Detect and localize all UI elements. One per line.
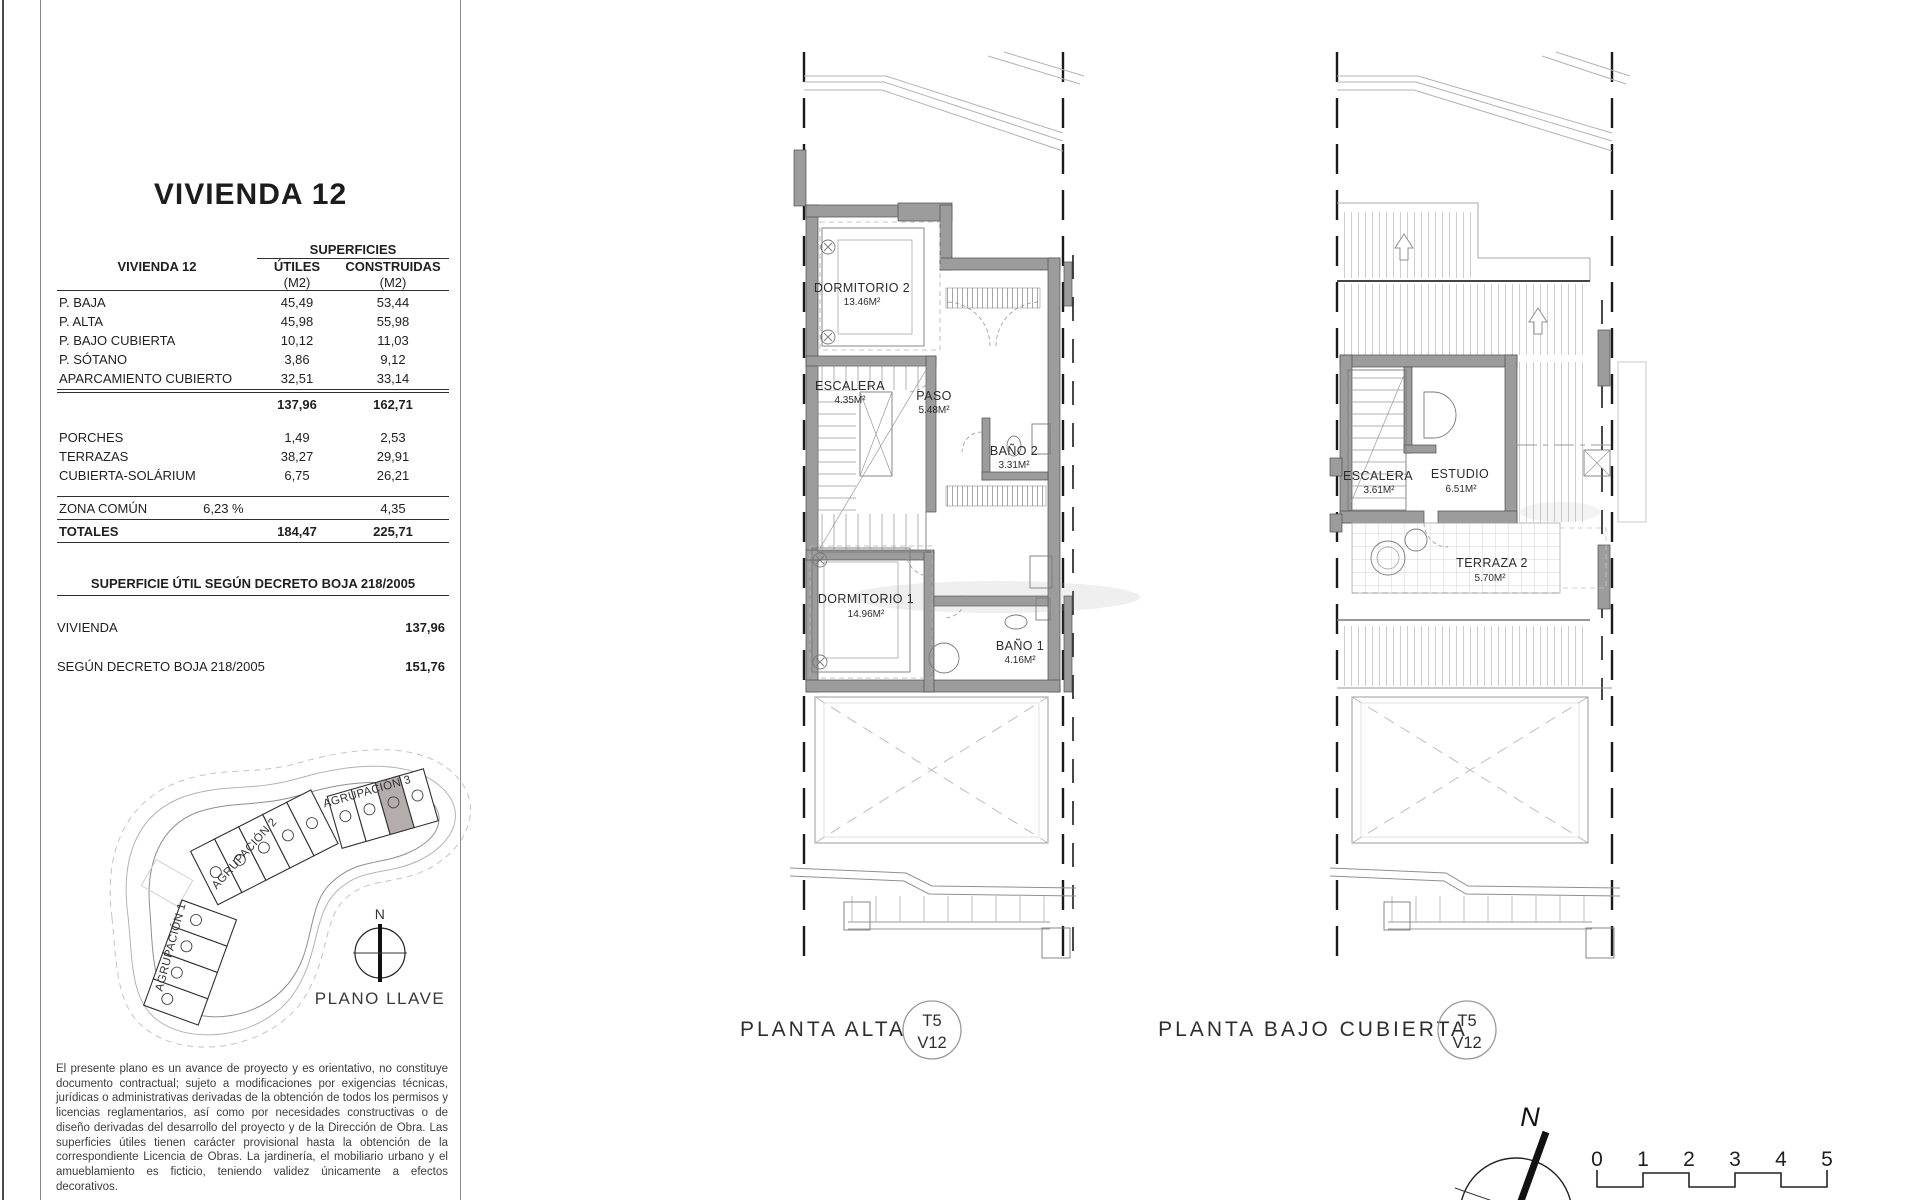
table-row: P. ALTA 45,98 55,98 [57, 312, 449, 331]
scale-bar-shape [1597, 1170, 1827, 1187]
room-label: ESCALERA [1343, 469, 1413, 483]
room-area: 5.70M² [1474, 573, 1506, 584]
post [1384, 902, 1410, 930]
table-row: P. BAJA 45,49 53,44 [57, 293, 449, 312]
table-row: APARCAMIENTO CUBIERTO 32,51 33,14 [57, 369, 449, 388]
sheet-compass: N [1455, 1102, 1582, 1200]
stairs-planta-alta [818, 366, 926, 552]
surfaces-table: SUPERFICIES VIVIENDA 12 ÚTILES CONSTRUID… [57, 242, 449, 545]
planta-alta-caption: PLANTA ALTA [740, 1018, 906, 1041]
watermark [1520, 502, 1600, 522]
room-area: 4.35M² [834, 395, 866, 406]
room-area: 4.16M² [1004, 655, 1036, 666]
room-label: PASO [916, 389, 951, 403]
table-row: P. BAJO CUBIERTA 10,12 11,03 [57, 331, 449, 350]
room-area: 3.31M² [998, 460, 1030, 471]
room-label: DORMITORIO 2 [814, 281, 910, 295]
road-structure [790, 868, 1076, 958]
table-row: P. SÓTANO 3,86 9,12 [57, 350, 449, 369]
subtotal-row: 137,96 162,71 [57, 395, 449, 414]
scale-tick-1: 1 [1637, 1148, 1649, 1171]
decree-row: SEGÚN DECRETO BOJA 218/2005 151,76 [57, 659, 449, 674]
decree-section: SUPERFICIE ÚTIL SEGÚN DECRETO BOJA 218/2… [57, 576, 449, 674]
badge-type: T5 [922, 1012, 941, 1030]
room-label: TERRAZA 2 [1456, 556, 1528, 570]
room-area: 13.46M² [844, 297, 881, 308]
table-group-header: SUPERFICIES [257, 242, 449, 259]
totales-row: TOTALES 184,47 225,71 [57, 522, 449, 541]
scale-tick-3: 3 [1729, 1148, 1741, 1171]
table-rule [57, 290, 449, 291]
column-unit: (M2) [337, 275, 449, 290]
post [1042, 928, 1070, 958]
page-title: VIVIENDA 12 [41, 178, 460, 212]
roof-hatch [1338, 284, 1588, 355]
room-label: BAÑO 1 [996, 639, 1044, 653]
room-area: 6.51M² [1445, 484, 1477, 495]
plan-sheet: { "panel": { "title": "VIVIENDA 12", "ta… [0, 0, 1920, 1200]
room-label: ESCALERA [815, 379, 885, 393]
decree-heading: SUPERFICIE ÚTIL SEGÚN DECRETO BOJA 218/2… [57, 576, 449, 596]
room-label: BAÑO 2 [990, 444, 1038, 458]
neighbor-structure [1618, 362, 1646, 522]
table-row: PORCHES 1,49 2,53 [57, 428, 449, 447]
wardrobe [946, 288, 1040, 308]
room-area: 3.61M² [1363, 485, 1395, 496]
scale-tick-5: 5 [1821, 1148, 1833, 1171]
table-row: CUBIERTA-SOLÁRIUM 6,75 26,21 [57, 466, 449, 485]
desk [1424, 392, 1456, 438]
scale-tick-4: 4 [1775, 1148, 1787, 1171]
decree-row: VIVIENDA 137,96 [57, 620, 449, 635]
void-below [815, 697, 1048, 843]
badge-unit: V12 [917, 1034, 946, 1052]
column-unit: (M2) [257, 275, 337, 290]
room-area: 5.48M² [918, 405, 950, 416]
planta-bajo-cubierta-drawing: ESCALERA 3.61M² ESTUDIO 6.51M² TERRAZA 2… [1158, 52, 1646, 1059]
room-label: ESTUDIO [1431, 467, 1489, 481]
toilet [1005, 615, 1027, 629]
room-label: DORMITORIO 1 [818, 592, 914, 606]
scale-tick-2: 2 [1683, 1148, 1695, 1171]
zona-comun-percent: 6,23 % [203, 501, 243, 516]
post [1586, 928, 1614, 958]
column-header-construidas: CONSTRUIDAS [337, 259, 449, 274]
road-structure [1330, 868, 1620, 958]
table-row: TERRAZAS 38,27 29,91 [57, 447, 449, 466]
north-letter: N [1520, 1102, 1540, 1132]
badge-type: T5 [1457, 1012, 1476, 1030]
post [844, 902, 870, 930]
compass-needle [1488, 1132, 1546, 1200]
planta-alta-drawing: DORMITORIO 2 13.46M² ESCALERA 4.35M² PAS… [740, 52, 1140, 1059]
table-rule [57, 542, 449, 543]
zona-comun-row: ZONA COMÚN6,23 % 4,35 [57, 499, 449, 518]
column-header-utiles: ÚTILES [257, 259, 337, 274]
void-below [1352, 697, 1588, 843]
legal-disclaimer: El presente plano es un avance de proyec… [56, 1062, 448, 1194]
table-rule [57, 496, 449, 497]
info-panel: VIVIENDA 12 SUPERFICIES VIVIENDA 12 ÚTIL… [40, 0, 461, 1200]
scale-tick-0: 0 [1591, 1148, 1603, 1171]
table-rule [57, 519, 449, 520]
wardrobe [946, 486, 1046, 506]
room-area: 14.96M² [848, 609, 885, 620]
planta-bajo-cubierta-caption: PLANTA BAJO CUBIERTA [1158, 1018, 1468, 1041]
scale-bar: 0 1 2 3 4 5 [1591, 1148, 1833, 1187]
badge-unit: V12 [1452, 1034, 1481, 1052]
table-rule [57, 389, 449, 393]
roof-hatch [1517, 362, 1588, 522]
table-row-header: VIVIENDA 12 [57, 259, 257, 274]
roof-hatch [1338, 626, 1588, 686]
